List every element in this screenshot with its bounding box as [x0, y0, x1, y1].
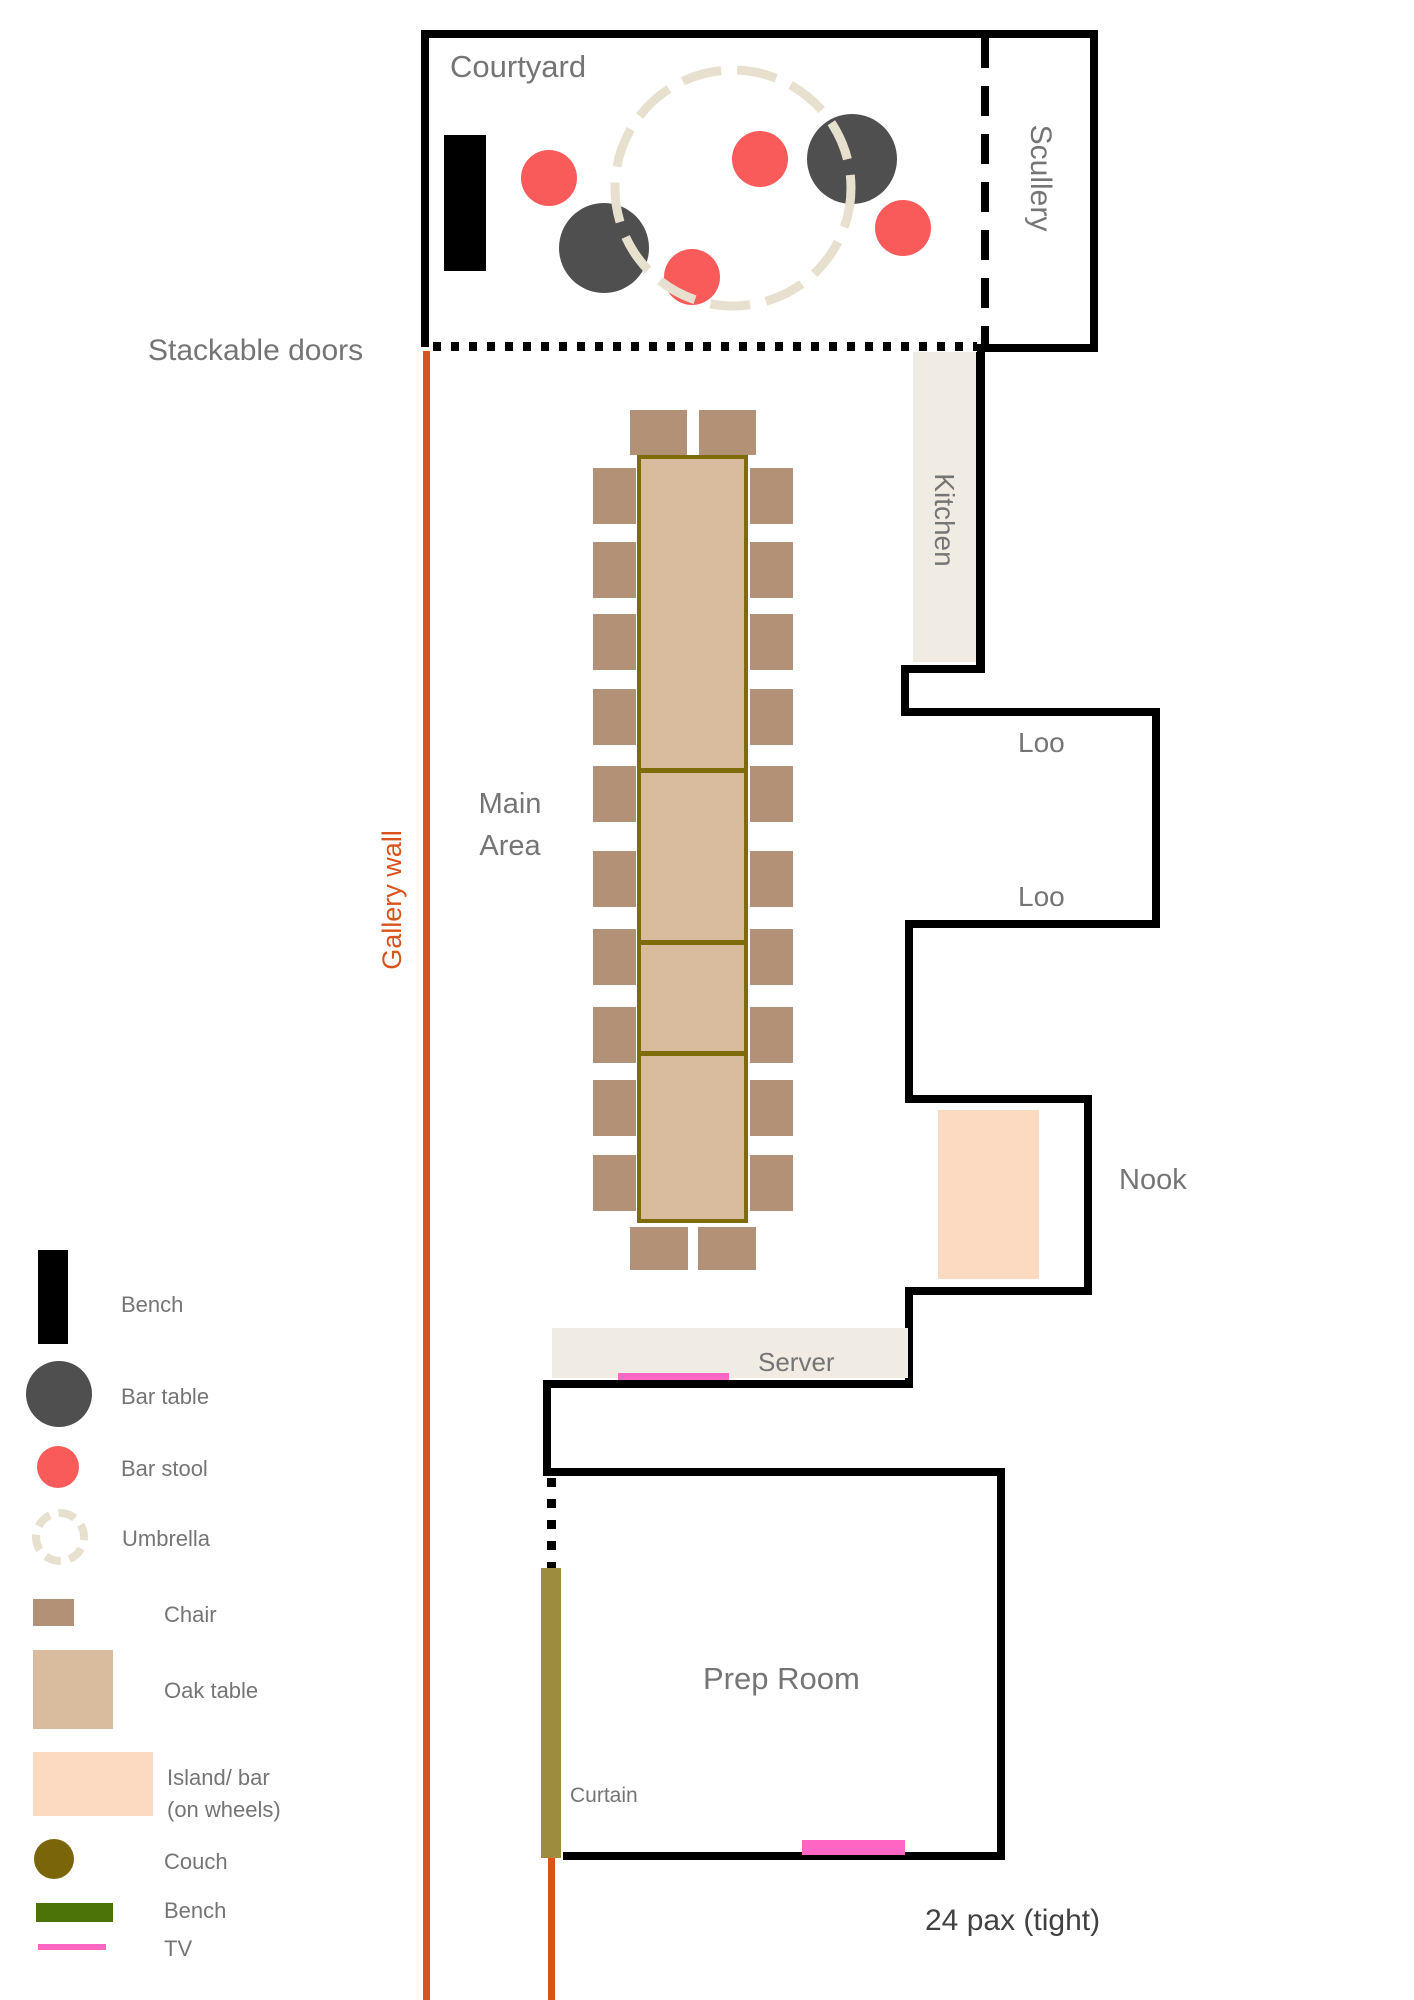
wall-server-left — [543, 1380, 551, 1473]
legend-label: Island/ bar (on wheels) — [167, 1762, 281, 1826]
bar-stool — [875, 200, 931, 256]
legend-swatch-bench-black — [38, 1250, 68, 1344]
oak-table-divider — [640, 940, 745, 945]
wall-prep-top — [543, 1468, 1005, 1476]
oak-table-divider — [640, 768, 745, 773]
legend-swatch-bench-green — [36, 1903, 113, 1922]
wall-courtyard-left — [421, 30, 429, 347]
legend-swatch-umbrella — [32, 1509, 88, 1565]
legend-label: TV — [164, 1936, 192, 1962]
island-bar — [938, 1110, 1039, 1279]
chair — [750, 851, 793, 907]
chair — [593, 851, 636, 907]
chair — [593, 542, 636, 598]
chair — [750, 1155, 793, 1211]
legend-label: Umbrella — [122, 1526, 210, 1552]
stackable-doors-label: Stackable doors — [148, 333, 363, 369]
chair — [593, 929, 636, 985]
umbrella — [606, 61, 860, 315]
legend-swatch-tv — [38, 1944, 106, 1950]
legend-label: Bench — [164, 1898, 226, 1924]
wall-prep-right — [997, 1468, 1005, 1860]
chair — [593, 1080, 636, 1136]
chair — [750, 468, 793, 524]
server-area — [552, 1328, 908, 1378]
bar-stool — [521, 150, 577, 206]
chair — [593, 468, 636, 524]
curtain-bar — [541, 1568, 561, 1858]
wall-kitchen-right — [976, 352, 985, 665]
wall-scullery-right — [1090, 30, 1098, 352]
chair — [630, 410, 687, 455]
wall-loo-right — [1152, 708, 1160, 928]
legend-label: Oak table — [164, 1678, 258, 1704]
courtyard-label: Courtyard — [450, 48, 586, 85]
tv-prep — [802, 1840, 905, 1855]
floor-plan: Courtyard Scullery Stackable doors Galle… — [0, 0, 1414, 2000]
server-label: Server — [758, 1347, 835, 1378]
prep-room-label: Prep Room — [703, 1660, 860, 1697]
legend-swatch-bar-stool — [37, 1446, 79, 1488]
chair — [750, 1007, 793, 1063]
curtain-label: Curtain — [570, 1783, 638, 1808]
chair — [699, 410, 756, 455]
chair — [593, 1007, 636, 1063]
bench-black — [444, 135, 486, 271]
nook-label: Nook — [1119, 1163, 1187, 1198]
wall-prep-bottom — [563, 1852, 1005, 1860]
chair — [750, 689, 793, 745]
chair — [750, 929, 793, 985]
loo-label-1: Loo — [1018, 726, 1065, 760]
chair — [750, 542, 793, 598]
wall-loo-top — [901, 708, 1160, 716]
chair — [750, 1080, 793, 1136]
prep-door-dotted — [547, 1478, 556, 1568]
wall-nook-top — [905, 1095, 1092, 1103]
stackable-doors-line — [433, 342, 977, 351]
wall-courtyard-top — [421, 30, 1098, 38]
curtain-rail-line — [548, 1858, 555, 2000]
legend-swatch-couch — [34, 1839, 74, 1879]
wall-kitchen-jog-h — [901, 665, 985, 673]
oak-table — [637, 455, 748, 1223]
chair — [593, 614, 636, 670]
chair — [750, 766, 793, 822]
wall-nook-bottom — [905, 1287, 1092, 1295]
oak-table-divider — [640, 1051, 745, 1056]
legend-swatch-island-bar — [33, 1752, 153, 1816]
legend-label: Bar table — [121, 1384, 209, 1410]
wall-corridor-left-upper — [905, 920, 913, 1103]
legend-swatch-oak-table — [33, 1650, 113, 1729]
legend-swatch-bar-table — [26, 1361, 92, 1427]
chair — [593, 689, 636, 745]
wall-scullery-dashed — [981, 38, 989, 344]
kitchen-label: Kitchen — [927, 473, 961, 566]
legend-label: Chair — [164, 1602, 217, 1628]
gallery-wall-label: Gallery wall — [376, 830, 408, 970]
loo-label-2: Loo — [1018, 880, 1065, 914]
chair — [698, 1227, 756, 1270]
chair — [630, 1227, 688, 1270]
legend-label: Bar stool — [121, 1456, 208, 1482]
main-area-label: Main Area — [479, 783, 542, 867]
chair — [593, 766, 636, 822]
gallery-wall-line — [423, 351, 430, 2000]
wall-loo-bottom — [905, 920, 1160, 928]
chair — [750, 614, 793, 670]
chair — [593, 1155, 636, 1211]
legend-label: Bench — [121, 1292, 183, 1318]
legend-label: Couch — [164, 1849, 228, 1875]
wall-server-bottom — [543, 1380, 913, 1388]
wall-nook-right — [1084, 1095, 1092, 1295]
capacity-note: 24 pax (tight) — [925, 1903, 1100, 1939]
scullery-label: Scullery — [1022, 125, 1058, 232]
legend-swatch-chair — [33, 1599, 74, 1626]
wall-scullery-bottom — [977, 344, 1098, 352]
